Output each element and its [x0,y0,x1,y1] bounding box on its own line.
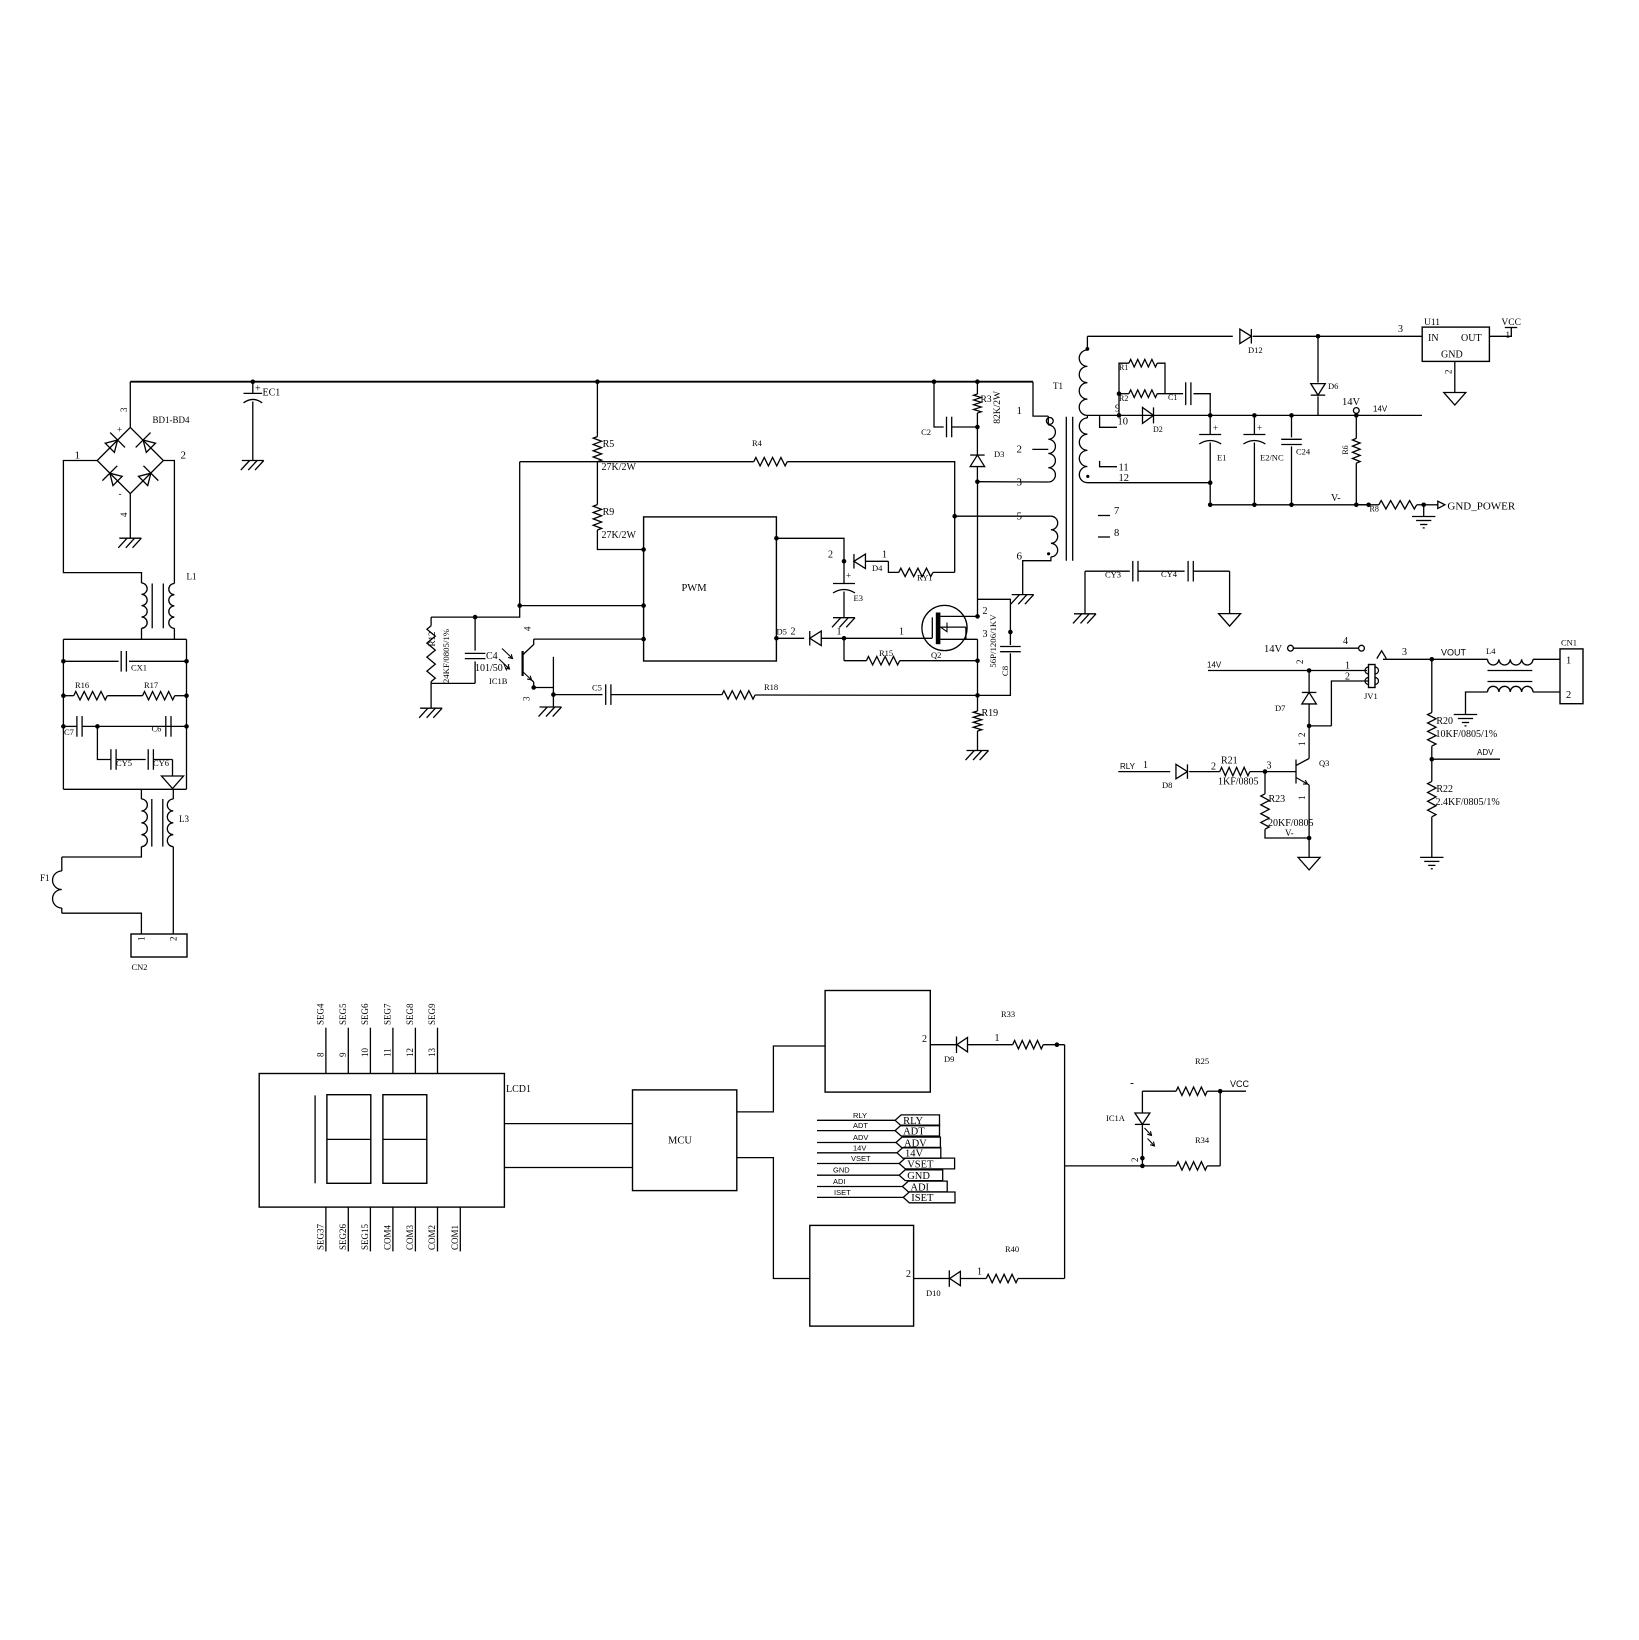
svg-text:E3: E3 [854,593,863,603]
svg-text:1: 1 [1297,796,1307,801]
svg-text:2: 2 [181,449,187,461]
svg-text:C1: C1 [1168,393,1177,402]
svg-text:-: - [119,489,122,499]
svg-text:VSET: VSET [907,1159,934,1170]
svg-text:R12: R12 [427,631,437,646]
svg-text:R17: R17 [144,680,158,690]
svg-text:D12: D12 [1248,345,1263,355]
svg-text:GND: GND [1441,350,1463,361]
svg-text:C4: C4 [486,651,498,662]
svg-text:R8: R8 [1370,505,1379,514]
svg-text:1: 1 [137,937,147,942]
svg-text:D2: D2 [1153,425,1163,434]
svg-text:1: 1 [899,627,904,638]
svg-text:27K/2W: 27K/2W [602,462,637,473]
svg-text:5: 5 [1017,511,1023,523]
svg-text:V-: V- [1285,828,1294,838]
svg-text:JV1: JV1 [1364,691,1378,701]
svg-text:4: 4 [119,512,129,517]
svg-text:R20: R20 [1436,716,1453,727]
svg-text:Q3: Q3 [1319,758,1329,768]
svg-text:R16: R16 [75,680,89,690]
svg-text:1: 1 [977,1267,982,1278]
svg-text:2: 2 [169,937,179,942]
svg-text:2: 2 [922,1034,927,1045]
svg-text:6: 6 [1017,551,1023,563]
svg-text:3: 3 [983,629,988,640]
svg-text:RY1: RY1 [917,573,933,583]
svg-text:L4: L4 [1486,646,1496,656]
svg-text:11: 11 [1119,463,1129,474]
svg-text:EC1: EC1 [263,388,281,399]
svg-text:SEG6: SEG6 [360,1003,370,1025]
svg-text:-: - [1130,1076,1134,1090]
svg-text:RLY: RLY [1120,762,1136,771]
svg-text:CY3: CY3 [1105,570,1121,580]
svg-text:+: + [1257,423,1262,433]
svg-text:C2: C2 [921,427,931,437]
svg-text:56P/1206/1KV: 56P/1206/1KV [988,614,998,668]
svg-text:2: 2 [1295,660,1305,665]
svg-text:R9: R9 [603,507,615,518]
svg-text:R19: R19 [982,708,999,719]
svg-text:LCD1: LCD1 [506,1084,531,1095]
svg-text:L3: L3 [179,814,189,824]
svg-text:1KF/0805: 1KF/0805 [1218,777,1259,788]
svg-text:VCC: VCC [1501,318,1521,328]
svg-text:C7: C7 [64,727,74,737]
svg-text:R15: R15 [879,648,893,658]
svg-text:SEG26: SEG26 [338,1223,348,1250]
svg-text:2: 2 [791,627,796,638]
svg-text:GND: GND [833,1166,850,1175]
svg-text:T1: T1 [1053,381,1063,391]
svg-text:14V: 14V [1207,661,1222,670]
svg-text:C8: C8 [1000,665,1010,676]
svg-text:2: 2 [1017,444,1023,456]
svg-text:1: 1 [837,627,842,638]
svg-text:D3: D3 [994,449,1004,459]
svg-text:GND: GND [907,1171,930,1182]
svg-text:+: + [117,425,122,435]
svg-text:2.4KF/0805/1%: 2.4KF/0805/1% [1436,797,1500,808]
svg-text:D4: D4 [872,563,883,573]
svg-text:C6: C6 [152,724,162,734]
svg-text:2: 2 [1297,733,1307,738]
svg-text:RLY: RLY [853,1111,867,1120]
svg-text:1: 1 [882,550,887,561]
svg-text:R23: R23 [1269,794,1286,805]
svg-text:1: 1 [995,1033,1000,1044]
svg-text:13: 13 [427,1048,437,1058]
svg-text:D8: D8 [1162,780,1172,790]
svg-text:R5: R5 [603,439,615,450]
svg-text:12: 12 [405,1048,415,1057]
svg-text:VSET: VSET [851,1154,871,1163]
svg-text:14V: 14V [1264,644,1283,655]
svg-text:R3: R3 [981,395,992,405]
svg-text:3: 3 [1398,324,1403,335]
svg-text:14V: 14V [1373,405,1388,414]
svg-text:2: 2 [828,550,833,561]
svg-text:SEG8: SEG8 [405,1003,415,1025]
svg-text:7: 7 [1114,506,1119,517]
svg-text:2: 2 [983,606,988,617]
svg-text:R21: R21 [1221,756,1238,767]
svg-text:R18: R18 [764,682,778,692]
svg-text:Q2: Q2 [931,650,941,660]
svg-text:V-: V- [1331,493,1341,504]
svg-text:CY5: CY5 [116,758,132,768]
svg-text:COM1: COM1 [450,1225,460,1250]
svg-text:ADT: ADT [903,1126,925,1137]
svg-text:1: 1 [1143,760,1148,771]
svg-text:SEG7: SEG7 [382,1003,392,1025]
svg-text:CN2: CN2 [132,962,148,972]
svg-text:ADV: ADV [853,1133,868,1142]
svg-text:R33: R33 [1001,1009,1015,1019]
svg-text:BD1-BD4: BD1-BD4 [153,415,191,425]
svg-text:2: 2 [1130,1158,1140,1163]
svg-text:COM4: COM4 [382,1224,392,1250]
svg-text:4: 4 [1343,636,1348,647]
svg-text:11: 11 [382,1048,392,1057]
svg-text:1: 1 [1017,405,1023,417]
svg-text:+: + [1213,423,1218,433]
svg-text:4: 4 [523,626,533,631]
svg-text:D7: D7 [1275,703,1285,713]
svg-text:SEG9: SEG9 [427,1003,437,1025]
svg-text:+: + [846,571,851,581]
svg-text:9: 9 [338,1052,348,1057]
svg-text:ISET: ISET [834,1188,851,1197]
svg-text:ADT: ADT [853,1121,868,1130]
svg-text:8: 8 [1114,528,1119,539]
svg-text:SEG15: SEG15 [360,1223,370,1250]
svg-text:D6: D6 [1328,381,1338,391]
svg-text:3: 3 [1267,761,1272,772]
svg-text:F1: F1 [40,873,50,883]
svg-text:GND_POWER: GND_POWER [1447,501,1515,513]
svg-text:1: 1 [1566,656,1571,667]
svg-text:R1: R1 [1119,363,1128,372]
svg-text:8: 8 [315,1052,325,1057]
svg-text:CY6: CY6 [153,758,169,768]
svg-text:R2: R2 [1119,394,1128,403]
svg-text:+: + [255,384,261,395]
svg-text:COM3: COM3 [405,1224,415,1250]
svg-text:D10: D10 [926,1288,941,1298]
svg-text:D9: D9 [944,1054,954,1064]
svg-text:CN1: CN1 [1561,638,1577,648]
svg-text:IN: IN [1428,333,1439,344]
svg-text:14V: 14V [1342,397,1361,408]
svg-text:VCC: VCC [1230,1079,1250,1089]
svg-text:3: 3 [1402,647,1407,658]
svg-text:CX1: CX1 [131,663,147,673]
svg-text:1: 1 [1297,742,1307,747]
svg-text:U11: U11 [1424,318,1440,328]
svg-text:SEG5: SEG5 [338,1003,348,1025]
svg-text:PWM: PWM [681,583,707,594]
svg-text:R25: R25 [1195,1056,1209,1066]
svg-text:CY4: CY4 [1161,569,1178,579]
svg-text:3: 3 [119,407,129,412]
svg-text:D5: D5 [777,627,787,637]
svg-text:ADI: ADI [833,1177,846,1186]
svg-text:R22: R22 [1436,784,1453,795]
svg-text:2: 2 [1211,762,1216,773]
svg-text:SEG4: SEG4 [315,1003,325,1025]
svg-text:SEG37: SEG37 [315,1223,325,1250]
svg-text:IC1B: IC1B [489,676,508,686]
svg-text:R6: R6 [1341,445,1350,454]
svg-text:C24: C24 [1296,447,1311,457]
svg-text:2: 2 [906,1269,911,1280]
svg-text:27K/2W: 27K/2W [602,530,637,541]
svg-text:82K/2W: 82K/2W [993,391,1003,424]
svg-text:1: 1 [75,449,81,461]
svg-text:MCU: MCU [668,1136,692,1147]
svg-text:R34: R34 [1195,1135,1210,1145]
svg-text:10: 10 [360,1048,370,1058]
svg-text:2: 2 [1444,370,1454,375]
svg-text:COM2: COM2 [427,1225,437,1250]
svg-text:14V: 14V [853,1143,866,1152]
svg-text:E1: E1 [1217,453,1226,463]
svg-text:VOUT: VOUT [1441,648,1467,658]
svg-text:L1: L1 [187,572,197,582]
svg-text:R4: R4 [752,438,763,448]
svg-text:1: 1 [1345,661,1350,672]
svg-text:24KF/0805/1%: 24KF/0805/1% [441,628,451,683]
svg-text:C5: C5 [592,683,602,693]
svg-text:2: 2 [1566,690,1571,701]
svg-text:10: 10 [1118,417,1129,428]
svg-text:IC1A: IC1A [1106,1113,1126,1123]
svg-text:ISET: ISET [911,1193,934,1204]
svg-text:E2/NC: E2/NC [1260,453,1284,463]
svg-text:1: 1 [1506,330,1511,340]
svg-text:ADV: ADV [1477,748,1494,757]
svg-text:R40: R40 [1005,1244,1019,1254]
svg-text:OUT: OUT [1461,333,1482,344]
svg-text:3: 3 [522,696,532,701]
svg-text:10KF/0805/1%: 10KF/0805/1% [1436,729,1498,740]
